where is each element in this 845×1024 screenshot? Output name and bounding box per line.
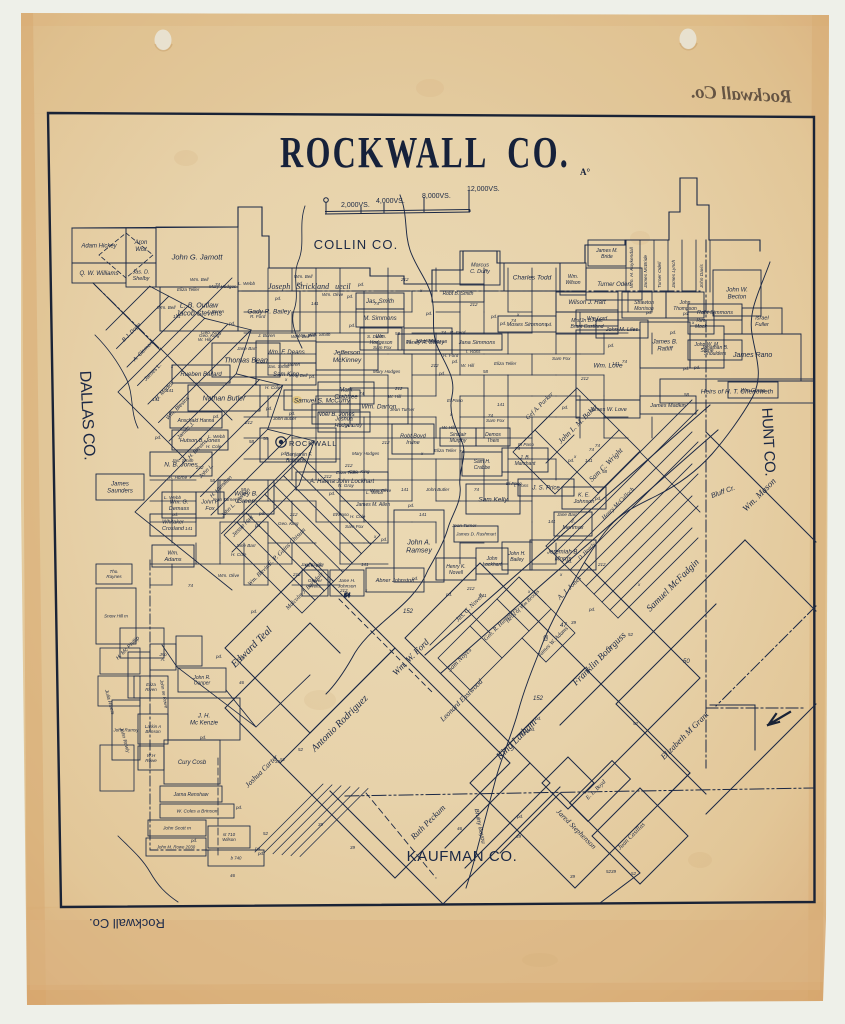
svg-text:pd.: pd. [499, 321, 506, 326]
svg-text:M. Simmons: M. Simmons [363, 316, 396, 322]
svg-text:pd.: pd. [645, 310, 652, 315]
svg-text:47: 47 [560, 623, 567, 629]
svg-text:74: 74 [188, 583, 194, 588]
svg-text:James D. Rashmart: James D. Rashmart [455, 532, 497, 537]
svg-text:Henry K.Novell: Henry K.Novell [446, 564, 465, 576]
svg-text:Sam Fox: Sam Fox [552, 356, 571, 361]
svg-text:74: 74 [511, 318, 517, 323]
svg-text:39: 39 [570, 874, 576, 879]
svg-text:IsraelFuller: IsraelFuller [755, 316, 770, 329]
svg-text:Jas. Smith: Jas. Smith [308, 332, 331, 337]
svg-text:N. Gray: N. Gray [338, 483, 355, 488]
svg-text:pd.: pd. [258, 511, 265, 516]
svg-text:Anschald Hanna: Anschald Hanna [177, 418, 215, 424]
svg-text:H. Cole: H. Cole [206, 444, 222, 449]
svg-text:pd.: pd. [565, 559, 572, 564]
svg-text:pd.: pd. [438, 371, 445, 376]
svg-text:74: 74 [595, 443, 601, 448]
svg-text:58: 58 [241, 487, 247, 492]
svg-text:Joseph Strickland uecil: Joseph Strickland uecil [268, 282, 351, 291]
svg-text:74: 74 [622, 359, 628, 364]
svg-text:pd.: pd. [588, 607, 595, 612]
svg-text:pd.: pd. [357, 282, 364, 287]
svg-text:W. Coles a Brinson: W. Coles a Brinson [177, 809, 218, 815]
svg-text:Jean Turner: Jean Turner [451, 523, 477, 528]
svg-text:John M. Rowe 2030: John M. Rowe 2030 [156, 845, 196, 850]
svg-text:58: 58 [602, 469, 608, 474]
svg-text:212: 212 [244, 420, 253, 425]
svg-text:J. Boren: J. Boren [257, 333, 276, 338]
svg-text:Eliza Teller: Eliza Teller [434, 448, 457, 453]
svg-text:Robt Simmons: Robt Simmons [697, 310, 733, 316]
svg-text:212: 212 [195, 465, 204, 470]
svg-text:141: 141 [612, 361, 620, 366]
svg-text:James M. Allen: James M. Allen [355, 502, 390, 508]
svg-text:pd.: pd. [199, 735, 206, 740]
svg-text:pd.: pd. [669, 330, 676, 335]
svg-text:pd.: pd. [250, 609, 257, 614]
svg-text:46: 46 [230, 873, 236, 878]
svg-text:Abner Johnston: Abner Johnston [375, 578, 415, 584]
svg-text:Robt B. Smith: Robt B. Smith [443, 291, 474, 297]
svg-text:A°: A° [580, 167, 590, 177]
svg-text:74: 74 [374, 301, 380, 306]
svg-text:A. Horne: A. Horne [168, 475, 188, 480]
svg-text:52: 52 [298, 747, 304, 752]
svg-text:John A.Ramsey: John A.Ramsey [406, 539, 432, 554]
svg-text:74: 74 [474, 487, 480, 492]
svg-text:pd.: pd. [190, 838, 197, 843]
svg-text:pd.: pd. [567, 458, 574, 463]
svg-text:141: 141 [497, 402, 505, 407]
svg-text:Wm. Olive: Wm. Olive [218, 573, 240, 578]
svg-text:46: 46 [524, 729, 530, 734]
svg-text:74: 74 [441, 330, 447, 335]
svg-text:Jas. Smith: Jas. Smith [365, 299, 395, 305]
svg-text:pd.: pd. [212, 414, 219, 419]
svg-text:212: 212 [394, 386, 403, 391]
svg-text:pd.: pd. [405, 339, 412, 344]
svg-text:152: 152 [533, 696, 544, 702]
svg-text:39: 39 [239, 656, 245, 661]
svg-text:pd.: pd. [490, 314, 497, 319]
svg-text:El Paso: El Paso [447, 398, 463, 403]
svg-text:152: 152 [403, 609, 414, 615]
svg-text:COLLIN CO.: COLLIN CO. [314, 237, 399, 252]
svg-text:Thomas Bean: Thomas Bean [224, 357, 268, 364]
svg-text:John Davis: John Davis [699, 264, 705, 289]
svg-text:Wm. Olive: Wm. Olive [322, 292, 344, 297]
svg-text:N. Gray: N. Gray [346, 423, 363, 428]
svg-text:John Scott m: John Scott m [162, 826, 191, 832]
svg-text:141: 141 [311, 301, 319, 306]
svg-text:Eliza Teller: Eliza Teller [336, 470, 359, 475]
svg-text:W. Hill: W. Hill [461, 363, 475, 368]
svg-text:58: 58 [395, 331, 401, 336]
svg-text:Wilson J. Hart: Wilson J. Hart [568, 300, 606, 306]
svg-text:pd.: pd. [265, 406, 272, 411]
svg-text:H. Cole: H. Cole [350, 514, 366, 519]
svg-text:8,000VS.: 8,000VS. [422, 193, 451, 200]
svg-text:58: 58 [483, 369, 489, 374]
svg-text:John R.Conper: John R.Conper [192, 675, 210, 687]
svg-text:H. Cole: H. Cole [231, 552, 247, 557]
svg-text:H. Cole: H. Cole [265, 385, 281, 390]
svg-text:74: 74 [459, 449, 465, 454]
svg-text:pd.: pd. [274, 296, 281, 301]
svg-text:212: 212 [430, 363, 439, 368]
svg-text:WhitakerCrosland: WhitakerCrosland [162, 520, 185, 533]
svg-text:141: 141 [173, 314, 181, 319]
svg-text:John H.Bailey: John H.Bailey [507, 551, 525, 563]
svg-text:Wm. Bell: Wm. Bell [157, 305, 176, 310]
svg-text:J. S. Price: J. S. Price [531, 486, 560, 492]
svg-text:Eliza Teller: Eliza Teller [494, 361, 517, 366]
svg-text:MarcusC. Duffy: MarcusC. Duffy [470, 263, 491, 276]
svg-text:39: 39 [516, 834, 522, 839]
svg-text:John Ramsy: John Ramsy [112, 728, 139, 733]
svg-text:pd.: pd. [254, 523, 261, 528]
svg-text:John G. Jamott: John G. Jamott [171, 253, 224, 262]
svg-text:pd.: pd. [235, 805, 242, 810]
svg-text:Jas. D.Shelby: Jas. D.Shelby [131, 270, 150, 283]
svg-text:4,000VS.: 4,000VS. [376, 198, 405, 205]
svg-text:Heirs of H. T. Chenoweth: Heirs of H. T. Chenoweth [701, 388, 774, 395]
svg-text:Turner Odell: Turner Odell [657, 261, 663, 288]
svg-text:52: 52 [543, 637, 549, 642]
svg-text:12,000VS.: 12,000VS. [467, 186, 500, 193]
svg-text:J. Boren: J. Boren [282, 362, 301, 367]
svg-text:pd.: pd. [451, 359, 458, 364]
svg-text:Q. W. Williams: Q. W. Williams [79, 271, 118, 277]
svg-text:141: 141 [585, 458, 593, 463]
svg-text:John M. Liles: John M. Liles [605, 327, 639, 333]
svg-text:A. Horne: A. Horne [417, 338, 437, 343]
svg-text:pd.: pd. [346, 294, 353, 299]
svg-text:Sam H.Crabbe: Sam H.Crabbe [474, 459, 491, 471]
svg-text:pd.: pd. [682, 311, 689, 316]
svg-text:pd.: pd. [516, 814, 523, 819]
svg-text:Sam Fox: Sam Fox [345, 524, 364, 529]
svg-text:pd.: pd. [348, 323, 355, 328]
svg-text:212: 212 [344, 463, 353, 468]
svg-text:pd.: pd. [445, 592, 452, 597]
svg-text:W. Hill: W. Hill [442, 425, 456, 430]
svg-text:El Paso: El Paso [518, 442, 534, 447]
svg-text:39: 39 [571, 620, 577, 625]
svg-text:JeffersonMcKinney: JeffersonMcKinney [333, 349, 362, 364]
svg-text:pd.: pd. [545, 322, 552, 327]
svg-text:52: 52 [263, 831, 269, 836]
svg-text:pd.: pd. [380, 537, 387, 542]
svg-text:pd.: pd. [296, 281, 303, 286]
svg-text:39: 39 [275, 759, 281, 764]
svg-text:ROCKWALL CO.: ROCKWALL CO. [280, 129, 570, 177]
svg-text:John Butler: John Butler [425, 487, 450, 492]
svg-text:pd.: pd. [328, 491, 335, 496]
svg-text:Geo. King: Geo. King [201, 330, 222, 335]
svg-text:HUNT CO.: HUNT CO. [758, 407, 779, 476]
svg-text:pd.: pd. [594, 496, 601, 501]
svg-text:El Paso: El Paso [333, 512, 349, 517]
svg-text:Larkin ABrinson: Larkin ABrinson [145, 724, 161, 734]
svg-text:Eliza Teller: Eliza Teller [177, 287, 200, 292]
svg-text:141: 141 [361, 562, 369, 567]
svg-text:L. Webb: L. Webb [164, 495, 181, 500]
svg-text:141: 141 [166, 388, 174, 393]
svg-text:Jana Simmons: Jana Simmons [458, 340, 496, 346]
svg-text:pd.: pd. [257, 851, 264, 856]
svg-text:pd.: pd. [605, 645, 612, 650]
svg-text:Wm. Bell: Wm. Bell [190, 277, 209, 282]
svg-text:b 740: b 740 [231, 856, 242, 861]
svg-text:Wm. Bell: Wm. Bell [289, 373, 308, 378]
svg-text:58: 58 [442, 339, 448, 344]
svg-text:52: 52 [628, 632, 634, 637]
svg-text:James Lynch: James Lynch [671, 259, 677, 289]
svg-text:J. Boren: J. Boren [206, 309, 225, 314]
svg-text:pd.: pd. [280, 451, 287, 456]
svg-text:pd.: pd. [228, 321, 235, 326]
svg-text:Sam Fox: Sam Fox [373, 345, 392, 350]
svg-text:pd.: pd. [171, 512, 178, 517]
svg-text:pd.: pd. [561, 405, 568, 410]
svg-text:Wm. F. Deans: Wm. F. Deans [267, 350, 305, 356]
svg-text:74: 74 [359, 391, 365, 396]
svg-text:58: 58 [210, 478, 216, 483]
svg-text:Cury Cosb: Cury Cosb [178, 760, 207, 766]
svg-text:Wm. H. Kuykendall: Wm. H. Kuykendall [629, 246, 635, 288]
svg-text:ElizaRiven: ElizaRiven [145, 682, 157, 692]
svg-text:L. Webb: L. Webb [366, 490, 383, 495]
svg-text:R. Ford: R. Ford [450, 330, 466, 335]
svg-text:39: 39 [350, 845, 356, 850]
svg-text:pd.: pd. [425, 311, 432, 316]
svg-text:Mary Hodges: Mary Hodges [352, 451, 380, 456]
svg-text:2,000VS.: 2,000VS. [341, 202, 370, 209]
svg-text:Sam Fox: Sam Fox [486, 418, 505, 423]
svg-text:pd.: pd. [154, 435, 161, 440]
svg-text:Rockwall Co.: Rockwall Co. [89, 916, 165, 931]
svg-text:James Madkin: James Madkin [649, 403, 685, 409]
svg-text:pd.: pd. [682, 366, 689, 371]
svg-text:74: 74 [589, 447, 595, 452]
svg-text:212: 212 [381, 440, 390, 445]
svg-text:141: 141 [548, 519, 556, 524]
svg-text:141: 141 [185, 526, 193, 531]
svg-text:Wm. Bell: Wm. Bell [305, 563, 324, 568]
svg-text:st 710Wilson: st 710Wilson [222, 832, 236, 842]
svg-text:141: 141 [479, 593, 487, 598]
svg-text:pd.: pd. [693, 365, 700, 370]
svg-text:141: 141 [152, 397, 160, 402]
svg-text:212: 212 [292, 572, 301, 577]
svg-text:T. Ross: T. Ross [513, 483, 529, 488]
svg-text:pd.: pd. [215, 654, 222, 659]
svg-text:S. Dunn: S. Dunn [367, 334, 384, 339]
svg-text:212: 212 [466, 586, 475, 591]
svg-text:58: 58 [684, 392, 690, 397]
svg-text:pd.: pd. [407, 503, 414, 508]
svg-text:R. Ford: R. Ford [250, 314, 266, 319]
svg-text:W. Hill: W. Hill [198, 337, 212, 342]
svg-text:James Rano: James Rano [732, 352, 772, 359]
svg-text:AronWist: AronWist [134, 240, 148, 253]
svg-text:L. Webb: L. Webb [208, 434, 225, 439]
svg-text:Jean Turner: Jean Turner [211, 497, 237, 502]
svg-text:58: 58 [263, 436, 269, 441]
svg-text:pd.: pd. [528, 727, 535, 732]
svg-text:141: 141 [419, 512, 427, 517]
svg-text:212: 212 [323, 474, 332, 479]
svg-text:212: 212 [400, 277, 409, 282]
svg-text:Snow Hill m: Snow Hill m [104, 614, 128, 619]
svg-text:Jas. Smith: Jas. Smith [171, 458, 194, 463]
svg-text:Jane Barr: Jane Barr [236, 346, 257, 351]
svg-text:Mary Hodges: Mary Hodges [209, 284, 237, 289]
svg-text:50: 50 [683, 659, 690, 665]
svg-text:R. Ford: R. Ford [443, 353, 459, 358]
svg-text:James McBride: James McBride [643, 255, 649, 289]
svg-text:212: 212 [597, 562, 606, 567]
svg-text:L. Webb: L. Webb [238, 281, 255, 286]
svg-text:pd.: pd. [607, 343, 614, 348]
svg-text:Geo. King: Geo. King [278, 521, 299, 526]
svg-text:46: 46 [457, 826, 463, 831]
svg-text:Jarna Renshaw: Jarna Renshaw [173, 792, 209, 798]
svg-text:pd.: pd. [411, 576, 418, 581]
svg-text:52: 52 [280, 757, 286, 762]
svg-text:Sam Kelly: Sam Kelly [478, 496, 508, 503]
svg-text:39: 39 [611, 869, 617, 874]
svg-text:Wm Lord: Wm Lord [587, 316, 608, 322]
svg-text:pd.: pd. [308, 374, 315, 379]
svg-text:John Butler: John Butler [272, 416, 297, 421]
svg-text:Jane Barr: Jane Barr [556, 512, 577, 517]
svg-text:Jean Turner: Jean Turner [389, 407, 415, 412]
svg-text:W. Hill: W. Hill [388, 394, 402, 399]
svg-text:46: 46 [239, 680, 245, 685]
svg-text:141: 141 [401, 487, 409, 492]
svg-text:39: 39 [318, 822, 324, 827]
svg-text:52: 52 [633, 721, 639, 726]
svg-text:Jane Barr: Jane Barr [235, 543, 256, 548]
svg-text:212: 212 [580, 376, 589, 381]
svg-text:John W.Becton: John W.Becton [725, 288, 748, 301]
svg-text:T. Ross: T. Ross [465, 349, 481, 354]
svg-text:58: 58 [249, 439, 255, 444]
svg-text:Wm. Bell: Wm. Bell [294, 274, 313, 279]
svg-text:212: 212 [289, 512, 298, 517]
svg-text:212: 212 [469, 302, 478, 307]
svg-text:52: 52 [631, 871, 637, 876]
svg-text:pd.: pd. [534, 716, 541, 721]
svg-text:Mary Hodges: Mary Hodges [373, 369, 401, 374]
